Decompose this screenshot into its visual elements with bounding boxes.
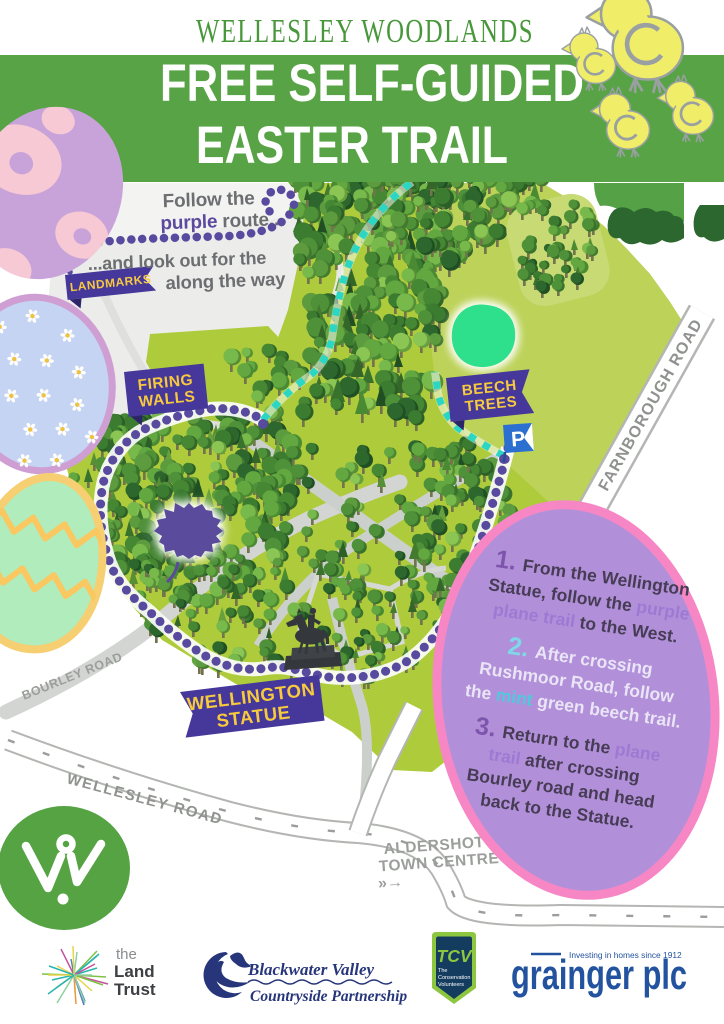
svg-text:The: The [438, 968, 447, 974]
svg-text:FREE SELF-GUIDED: FREE SELF-GUIDED [160, 54, 584, 113]
svg-text:»→: »→ [377, 874, 403, 893]
svg-text:Conservation: Conservation [438, 975, 470, 981]
svg-text:along the way: along the way [165, 268, 286, 293]
svg-text:the: the [116, 946, 137, 963]
svg-text:Volunteers: Volunteers [438, 982, 464, 988]
svg-text:Countryside Partnership: Countryside Partnership [250, 988, 407, 1005]
svg-text:Trust: Trust [114, 980, 156, 999]
svg-text:Investing in homes since 1912: Investing in homes since 1912 [569, 950, 682, 960]
svg-text:Follow the: Follow the [162, 188, 255, 212]
svg-text:WELLESLEY WOODLANDS: WELLESLEY WOODLANDS [196, 13, 534, 50]
svg-text:P: P [510, 428, 526, 452]
svg-text:Blackwater Valley: Blackwater Valley [247, 960, 375, 979]
svg-text:EASTER TRAIL: EASTER TRAIL [196, 116, 508, 175]
svg-text:TCV: TCV [437, 946, 473, 966]
svg-text:Land: Land [114, 962, 155, 981]
